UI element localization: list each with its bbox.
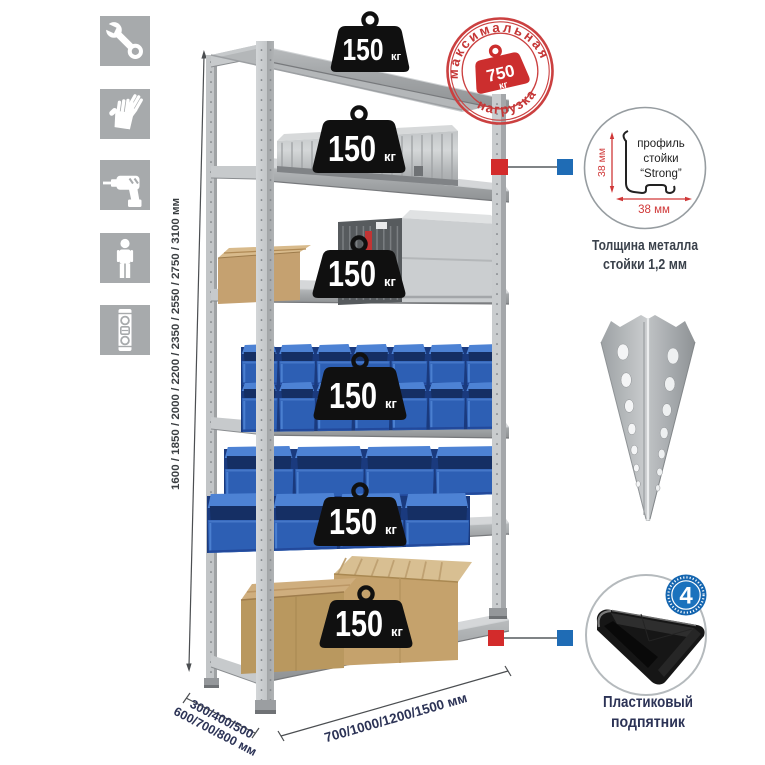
svg-text:38 мм: 38 мм bbox=[596, 148, 608, 177]
svg-text:150: 150 bbox=[329, 501, 377, 542]
svg-text:кг: кг bbox=[384, 274, 397, 289]
svg-text:150: 150 bbox=[329, 375, 377, 416]
svg-text:38 мм: 38 мм bbox=[638, 204, 670, 216]
svg-text:1600 / 1850 / 2000 / 2200 / 23: 1600 / 1850 / 2000 / 2200 / 2350 / 2550 … bbox=[170, 198, 182, 490]
svg-text:150: 150 bbox=[335, 603, 383, 644]
svg-text:“Strong”: “Strong” bbox=[640, 168, 682, 180]
svg-text:кг: кг bbox=[385, 396, 398, 411]
svg-text:Толщина металла: Толщина металла bbox=[592, 238, 699, 254]
svg-text:150: 150 bbox=[328, 128, 376, 169]
svg-text:Пластиковый: Пластиковый bbox=[603, 694, 693, 711]
svg-text:кг: кг bbox=[391, 624, 404, 639]
svg-text:кг: кг bbox=[385, 522, 398, 537]
svg-text:150: 150 bbox=[343, 32, 384, 67]
svg-text:4: 4 bbox=[679, 583, 693, 610]
svg-text:подпятник: подпятник bbox=[611, 714, 685, 731]
svg-text:стойки: стойки bbox=[643, 153, 678, 165]
svg-text:стойки 1,2 мм: стойки 1,2 мм bbox=[603, 257, 687, 273]
svg-text:150: 150 bbox=[328, 253, 376, 294]
svg-text:кг: кг bbox=[391, 51, 402, 63]
svg-text:профиль: профиль bbox=[637, 138, 685, 150]
svg-text:кг: кг bbox=[384, 149, 397, 164]
